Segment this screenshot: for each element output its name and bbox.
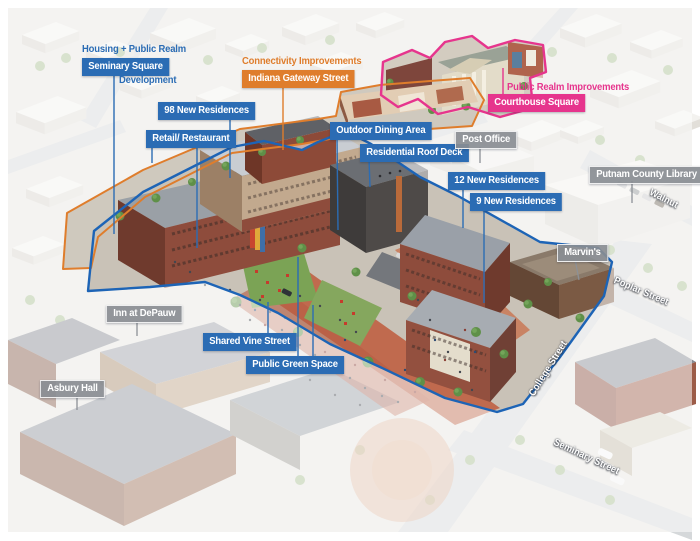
callout-retail-restaurant: Retail/ Restaurant: [146, 130, 236, 148]
callout-residential-roof-deck: Residential Roof Deck: [360, 144, 469, 162]
callout-9-new-residences: 9 New Residences: [470, 193, 562, 211]
connectivity-improvements-heading: Connectivity Improvements: [242, 56, 361, 67]
callout-98-new-residences: 98 New Residences: [158, 102, 255, 120]
development-subheading: Development: [119, 75, 176, 86]
callout-shared-vine-street: Shared Vine Street: [203, 333, 296, 351]
callout-12-new-residences: 12 New Residences: [448, 172, 545, 190]
callout-inn-at-depauw: Inn at DePauw: [106, 305, 183, 323]
housing-public-realm-heading: Housing + Public Realm: [82, 44, 186, 55]
callout-asbury-hall: Asbury Hall: [40, 380, 105, 398]
callout-putnam-county-library: Putnam County Library: [589, 166, 700, 184]
callout-post-office: Post Office: [455, 131, 517, 149]
callout-public-green-space: Public Green Space: [246, 356, 344, 374]
callout-marvins: Marvin's: [557, 244, 608, 262]
seminary-square-masterplan-rendering: Housing + Public Realm Seminary Square D…: [0, 0, 700, 541]
public-realm-improvements-heading: Public Realm Improvements: [507, 82, 629, 93]
callout-seminary-square: Seminary Square: [82, 58, 169, 76]
callout-outdoor-dining-area: Outdoor Dining Area: [330, 122, 432, 140]
callout-courthouse-square: Courthouse Square: [488, 94, 585, 112]
callout-indiana-gateway-street: Indiana Gateway Street: [242, 70, 355, 88]
